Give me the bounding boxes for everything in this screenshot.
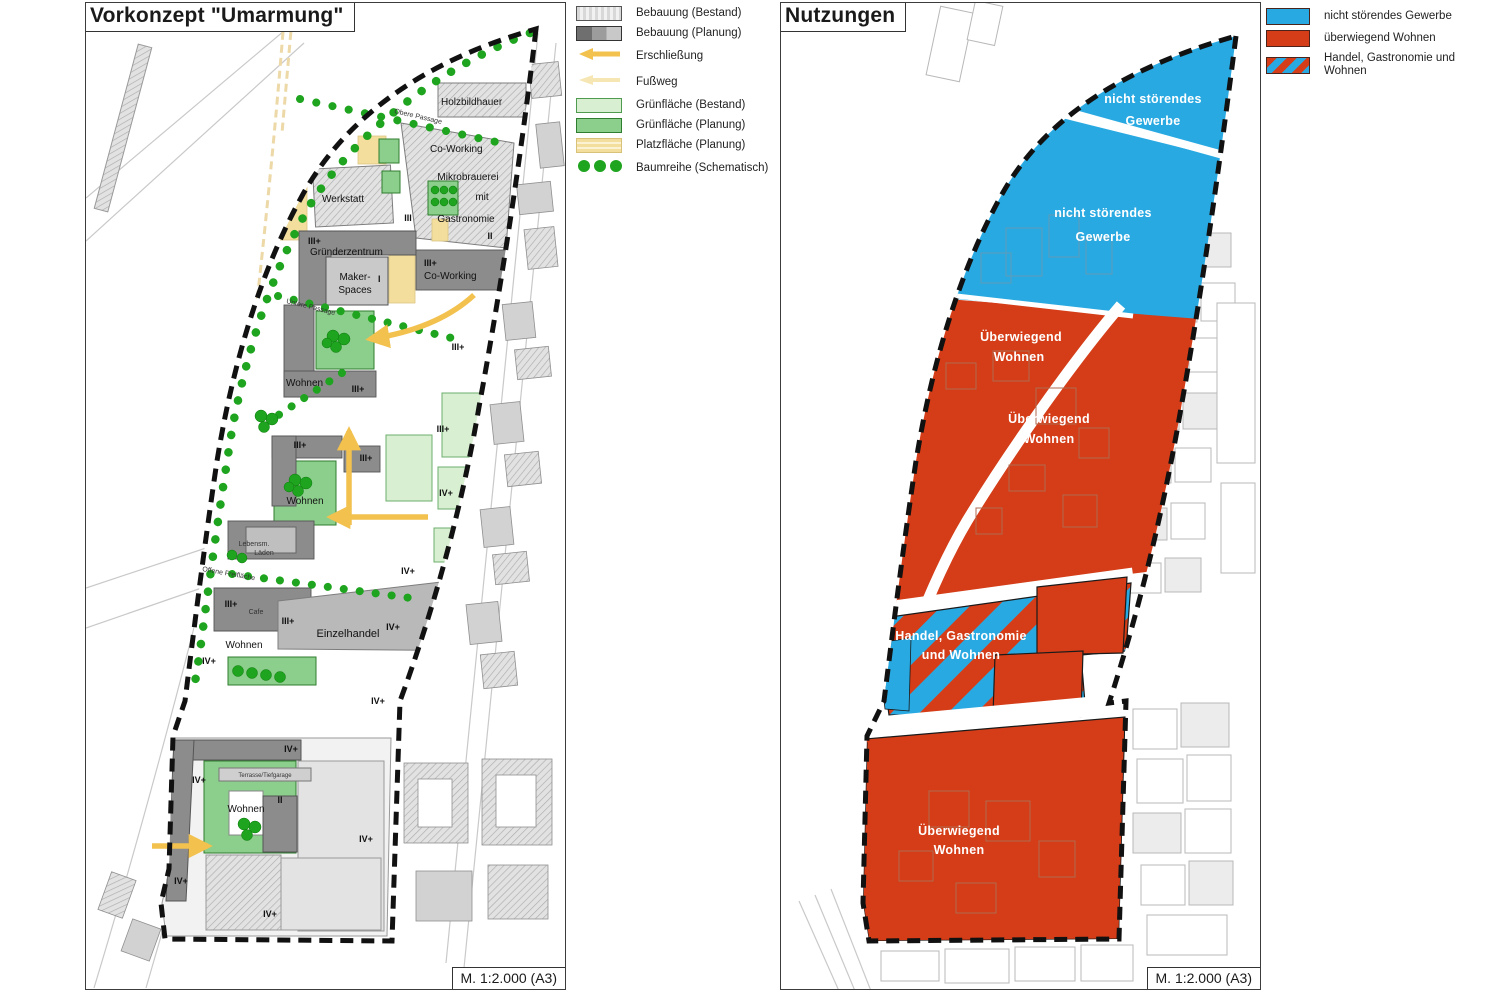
context-streets xyxy=(799,889,871,989)
label-cafe: Cafe xyxy=(249,609,264,616)
label-wohnen-1: Wohnen xyxy=(286,378,323,389)
floor-marker: III+ xyxy=(294,440,307,450)
legend-label: Bebauung (Planung) xyxy=(636,27,742,40)
concept-legend: Bebauung (Bestand) Bebauung (Planung) Er… xyxy=(576,6,776,184)
right-map-scale: M. 1:2.000 (A3) xyxy=(1147,967,1261,989)
gewerbe-swatch xyxy=(1266,8,1310,25)
label-wohnen-4: Wohnen xyxy=(227,804,264,815)
wohnen-swatch xyxy=(1266,30,1310,47)
label-terrasse: Terrasse/Tiefgarage xyxy=(238,773,292,779)
legend-label: Platzfläche (Planung) xyxy=(636,139,745,152)
floor-marker: IV+ xyxy=(284,744,298,754)
legend-item: Bebauung (Bestand) xyxy=(576,6,776,21)
floor-marker: IV+ xyxy=(371,696,385,706)
legend-label: Fußweg xyxy=(636,76,678,89)
baumreihe-dots-icon xyxy=(576,158,622,179)
floor-co-working-2: III+ xyxy=(424,258,437,268)
floor-marker: III+ xyxy=(360,453,373,463)
left-map-panel: Holzbildhauer Co-Working Werkstatt Mikro… xyxy=(85,2,566,990)
legend-item: Bebauung (Planung) xyxy=(576,26,776,41)
railway-strip xyxy=(94,44,152,212)
floor-marker: III+ xyxy=(437,424,450,434)
legend-label: Bebauung (Bestand) xyxy=(636,7,742,20)
floor-marker: IV+ xyxy=(192,775,206,785)
bottom-block xyxy=(162,738,391,936)
platzflaeche-swatch xyxy=(576,138,622,153)
floor-gruenderzentrum: III+ xyxy=(308,236,321,246)
left-map-title: Vorkonzept "Umarmung" xyxy=(86,3,355,32)
concept-map: Holzbildhauer Co-Working Werkstatt Mikro… xyxy=(86,3,565,989)
label-co-working-2: Co-Working xyxy=(424,271,477,282)
label-wohnen-mid-2: Wohnen xyxy=(1024,432,1075,446)
label-werkstatt: Werkstatt xyxy=(322,194,364,205)
legend-label: nicht störendes Gewerbe xyxy=(1324,10,1452,23)
label-gruenderzentrum: Gründerzentrum xyxy=(310,247,383,258)
label-gewerbe-top-2: Gewerbe xyxy=(1126,114,1181,128)
gruenflaeche-bestand-swatch xyxy=(576,98,622,113)
legend-label: überwiegend Wohnen xyxy=(1324,32,1436,45)
fussweg-arrow-icon xyxy=(576,72,622,93)
label-handel-2: und Wohnen xyxy=(922,648,1000,662)
label-gewerbe-mid-2: Gewerbe xyxy=(1076,230,1131,244)
label-mit: mit xyxy=(475,192,489,203)
legend-item: Grünfläche (Planung) xyxy=(576,118,776,133)
label-holzbildhauer: Holzbildhauer xyxy=(441,97,503,108)
label-wohnen-upper-2: Wohnen xyxy=(994,350,1045,364)
floor-maker: I xyxy=(378,274,381,284)
label-laeden-2: Läden xyxy=(254,550,274,557)
label-wohnen-bottom-2: Wohnen xyxy=(934,843,985,857)
label-einzelhandel: Einzelhandel xyxy=(317,628,380,640)
zoning-map: nicht störendes Gewerbe nicht störendes … xyxy=(781,3,1260,989)
zone-handel-red-part-1 xyxy=(1037,577,1127,655)
label-wohnen-3: Wohnen xyxy=(225,640,262,651)
label-gastronomie: Gastronomie xyxy=(437,214,495,225)
right-map-title: Nutzungen xyxy=(781,3,906,32)
floor-marker: III+ xyxy=(352,384,365,394)
label-co-working-1: Co-Working xyxy=(430,144,483,155)
floor-marker: IV+ xyxy=(439,488,453,498)
legend-item: Grünfläche (Bestand) xyxy=(576,98,776,113)
floor-marker: IV+ xyxy=(174,876,188,886)
floor-marker: IV+ xyxy=(202,656,216,666)
label-mikrobrauerei: Mikrobrauerei xyxy=(437,172,498,183)
legend-label: Baumreihe (Schematisch) xyxy=(636,162,768,175)
bebauung-bestand-swatch xyxy=(576,6,622,21)
left-map-scale: M. 1:2.000 (A3) xyxy=(452,967,566,989)
label-handel-1: Handel, Gastronomie xyxy=(895,629,1026,643)
legend-item: überwiegend Wohnen xyxy=(1266,30,1466,47)
label-gewerbe-top-1: nicht störendes xyxy=(1104,92,1202,106)
floor-marker: III+ xyxy=(225,599,238,609)
legend-label: Erschließung xyxy=(636,50,703,63)
label-wohnen-upper-1: Überwiegend xyxy=(980,329,1062,344)
label-gewerbe-mid-1: nicht störendes xyxy=(1054,206,1152,220)
legend-item: Erschließung xyxy=(576,46,776,67)
legend-label: Handel, Gastronomie und Wohnen xyxy=(1324,52,1466,78)
floor-marker: III+ xyxy=(452,342,465,352)
label-maker-1: Maker- xyxy=(339,272,370,283)
floor-marker: IV+ xyxy=(263,909,277,919)
legend-item: Handel, Gastronomie und Wohnen xyxy=(1266,52,1466,78)
zoning-legend: nicht störendes Gewerbe überwiegend Wohn… xyxy=(1266,8,1466,83)
legend-item: Fußweg xyxy=(576,72,776,93)
legend-item: Platzfläche (Planung) xyxy=(576,138,776,153)
legend-item: Baumreihe (Schematisch) xyxy=(576,158,776,179)
label-laeden-1: Lebensm. xyxy=(239,541,270,548)
planning-sheet: { "colors": { "gewerbe_blue": "#29A9E1",… xyxy=(0,0,1500,1000)
floor-ii-bottom: II xyxy=(277,795,282,805)
bebauung-planung-swatch xyxy=(576,26,622,41)
right-map-panel: nicht störendes Gewerbe nicht störendes … xyxy=(780,2,1261,990)
label-wohnen-2: Wohnen xyxy=(286,496,323,507)
floor-marker: IV+ xyxy=(401,566,415,576)
label-wohnen-bottom-1: Überwiegend xyxy=(918,823,1000,838)
label-wohnen-mid-1: Überwiegend xyxy=(1008,411,1090,426)
floor-marker: III+ xyxy=(282,616,295,626)
erschliessung-arrow-icon xyxy=(576,46,622,67)
gruenflaeche-planung-swatch xyxy=(576,118,622,133)
floor-marker: IV+ xyxy=(359,834,373,844)
floor-marker: IV+ xyxy=(386,622,400,632)
legend-label: Grünfläche (Planung) xyxy=(636,119,745,132)
handel-mischung-swatch xyxy=(1266,57,1310,74)
legend-label: Grünfläche (Bestand) xyxy=(636,99,745,112)
floor-iii-top: III xyxy=(404,213,412,223)
legend-item: nicht störendes Gewerbe xyxy=(1266,8,1466,25)
label-maker-2: Spaces xyxy=(338,285,371,296)
floor-ii-top: II xyxy=(487,231,492,241)
